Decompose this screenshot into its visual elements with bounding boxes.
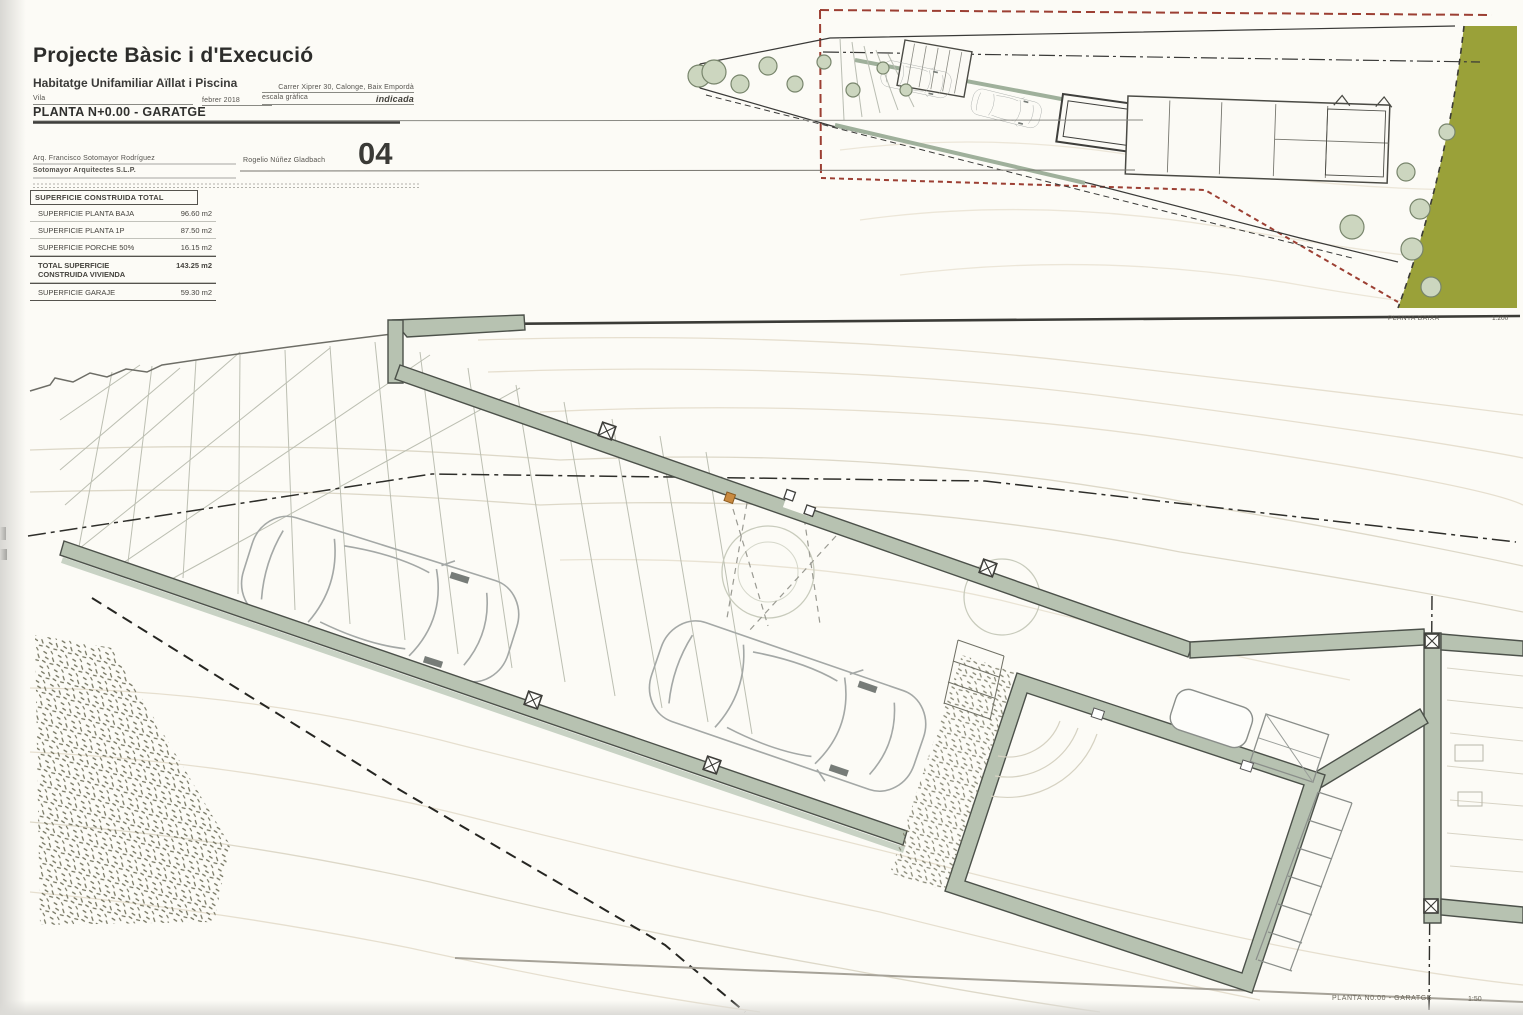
site-house xyxy=(1125,88,1392,183)
project-ref: Vila xyxy=(33,95,193,105)
row-label: SUPERFICIE PORCHE 50% xyxy=(38,243,134,252)
site-plan-scale: 1:200 xyxy=(1492,315,1509,322)
row-value: 87.50 m2 xyxy=(181,226,212,235)
garage-room-interior xyxy=(991,686,1329,797)
scale-value: indicada xyxy=(376,94,414,104)
walls xyxy=(60,315,1523,993)
row-value: 59.30 m2 xyxy=(181,288,212,297)
slope-hatch-lines xyxy=(60,342,752,734)
sheet-number: 04 xyxy=(358,136,392,172)
drawing-svg: PLANTA BAIXA 1:200 PLANTA N0.00 - GARATG… xyxy=(0,0,1523,1015)
tree-outline xyxy=(722,526,814,618)
table-row: SUPERFICIE GARAJE 59.30 m2 xyxy=(30,283,216,301)
project-address-block: Carrer Xiprer 30, Calonge, Baix Empordà … xyxy=(262,84,414,105)
table-row: SUPERFICIE PORCHE 50% 16.15 m2 xyxy=(30,239,216,256)
adjacent-structure-lines xyxy=(1447,668,1523,872)
separator-line xyxy=(478,316,1520,324)
areas-table: SUPERFICIE CONSTRUIDA TOTAL SUPERFICIE P… xyxy=(30,190,216,301)
main-plan-scale: 1:50 xyxy=(1468,996,1482,1003)
scan-smudge xyxy=(0,549,7,560)
gate-post xyxy=(804,505,815,516)
architect-name: Arq. Francisco Sotomayor Rodríguez xyxy=(33,155,238,162)
table-row: SUPERFICIE PLANTA BAJA 96.60 m2 xyxy=(30,205,216,222)
main-plan-label: PLANTA N0.00 - GARATGE xyxy=(1332,995,1432,1002)
contour-lines xyxy=(30,142,1523,1012)
scale-label: escala gràfica xyxy=(262,94,308,104)
wall-top-stub xyxy=(393,315,525,337)
boundary-lines xyxy=(28,316,1523,1013)
wall-right-vertical xyxy=(1424,633,1441,923)
wall-garage-link xyxy=(1314,709,1428,787)
project-address: Carrer Xiprer 30, Calonge, Baix Empordà xyxy=(262,84,414,93)
wall-stub-top-right xyxy=(1441,634,1523,656)
site-plan: PLANTA BAIXA 1:200 xyxy=(688,10,1517,322)
row-label: SUPERFICIE GARAJE xyxy=(38,288,115,297)
project-subtitle: Habitatge Unifamiliar Aïllat i Piscina xyxy=(33,76,237,90)
olive-slope-area xyxy=(1398,26,1517,308)
gate-post xyxy=(784,489,795,500)
scan-smudge xyxy=(0,527,6,540)
scanned-sheet: PLANTA BAIXA 1:200 PLANTA N0.00 - GARATG… xyxy=(0,0,1523,1015)
title-block-rules xyxy=(33,120,1143,188)
row-value: 16.15 m2 xyxy=(181,243,212,252)
site-wall xyxy=(835,125,1085,183)
row-label: SUPERFICIE PLANTA 1P xyxy=(38,226,125,235)
table-row-total: TOTAL SUPERFICIE CONSTRUIDA VIVIENDA 143… xyxy=(30,256,216,283)
row-value: 96.60 m2 xyxy=(181,209,212,218)
project-title: Projecte Bàsic i d'Execució xyxy=(33,44,313,68)
wall-stub-bottom-right xyxy=(1441,899,1523,923)
table-row: SUPERFICIE PLANTA 1P 87.50 m2 xyxy=(30,222,216,239)
row-value: 143.25 m2 xyxy=(176,261,212,270)
plan-name: PLANTA N+0.00 - GARATGE xyxy=(33,105,206,119)
row-label: TOTAL SUPERFICIE CONSTRUIDA VIVIENDA xyxy=(38,261,156,279)
row-label: SUPERFICIE PLANTA BAJA xyxy=(38,209,134,218)
areas-table-header: SUPERFICIE CONSTRUIDA TOTAL xyxy=(30,190,198,205)
wall-upper-right xyxy=(1190,629,1425,658)
site-plan-label: PLANTA BAIXA xyxy=(1388,315,1440,322)
garage-room-walls xyxy=(945,673,1325,993)
firm-name: Sotomayor Arquitectes S.L.P. xyxy=(33,167,238,174)
